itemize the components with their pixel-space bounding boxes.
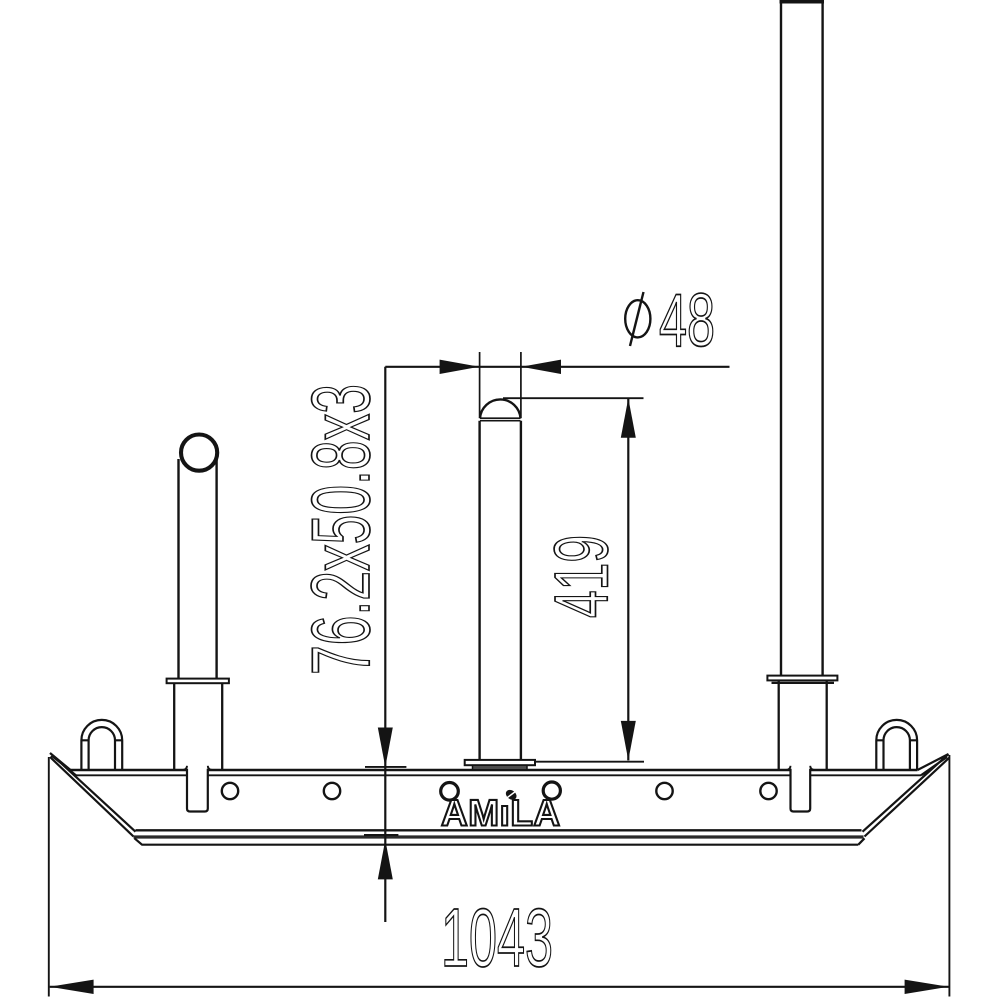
svg-text:76.2x50.8x3: 76.2x50.8x3 [294, 384, 387, 675]
svg-text:419: 419 [540, 535, 625, 618]
svg-text:48: 48 [659, 278, 715, 362]
svg-text:1043: 1043 [441, 891, 553, 984]
svg-text:AMıLA: AMıLA [441, 793, 561, 834]
